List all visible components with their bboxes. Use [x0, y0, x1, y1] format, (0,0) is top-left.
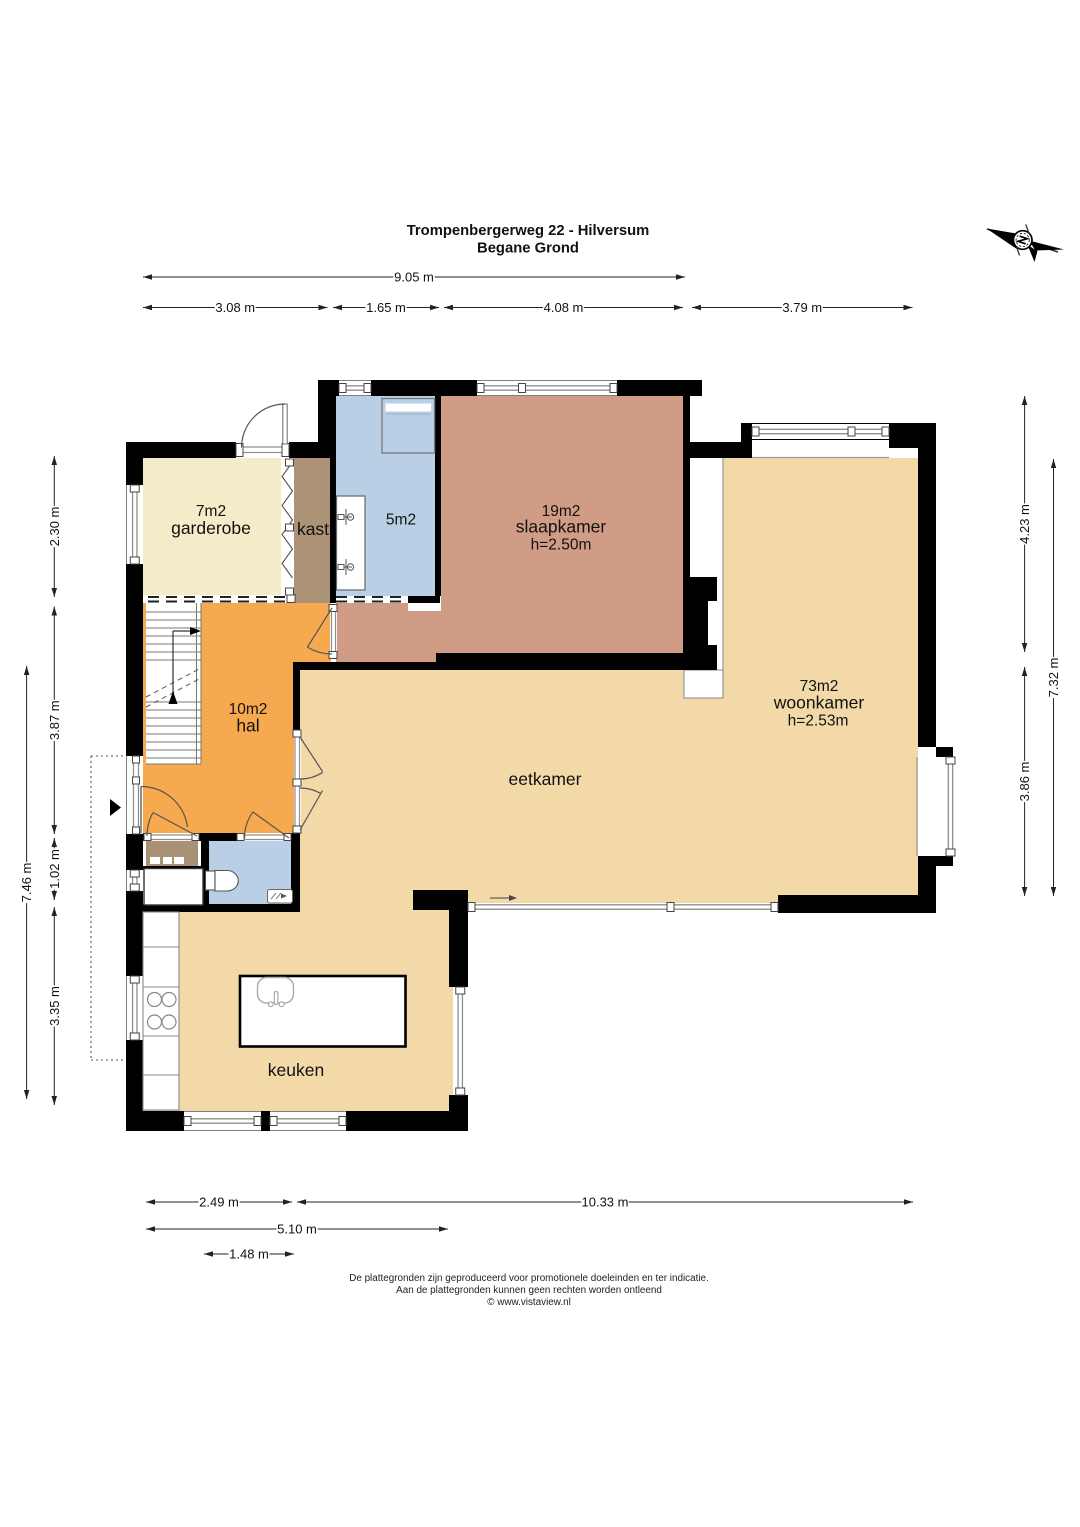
- svg-text:De plattegronden zijn geproduc: De plattegronden zijn geproduceerd voor …: [349, 1273, 709, 1284]
- svg-text:9.05 m: 9.05 m: [394, 270, 434, 285]
- svg-text:1.02 m: 1.02 m: [47, 849, 62, 889]
- svg-text:1.65 m: 1.65 m: [366, 300, 406, 315]
- svg-text:5m2: 5m2: [386, 512, 416, 529]
- svg-text:5.10 m: 5.10 m: [277, 1222, 317, 1237]
- svg-text:h=2.53m: h=2.53m: [788, 713, 849, 730]
- svg-text:Trompenbergerweg 22 - Hilversu: Trompenbergerweg 22 - Hilversum: [407, 223, 650, 239]
- svg-text:keuken: keuken: [268, 1060, 324, 1080]
- svg-text:3.79 m: 3.79 m: [782, 300, 822, 315]
- svg-text:3.08 m: 3.08 m: [215, 300, 255, 315]
- svg-text:1.48 m: 1.48 m: [229, 1247, 269, 1262]
- svg-text:7.32 m: 7.32 m: [1046, 658, 1061, 698]
- svg-text:10.33 m: 10.33 m: [582, 1195, 629, 1210]
- svg-text:4.08 m: 4.08 m: [544, 300, 584, 315]
- svg-text:2.49 m: 2.49 m: [199, 1195, 239, 1210]
- svg-text:3.35 m: 3.35 m: [47, 986, 62, 1026]
- svg-text:eetkamer: eetkamer: [509, 769, 582, 789]
- svg-text:© www.vistaview.nl: © www.vistaview.nl: [487, 1297, 571, 1308]
- svg-text:2.30 m: 2.30 m: [47, 507, 62, 547]
- svg-text:Aan de plattegronden kunnen ge: Aan de plattegronden kunnen geen rechten…: [396, 1285, 662, 1296]
- svg-text:3.86 m: 3.86 m: [1017, 762, 1032, 802]
- svg-text:kast: kast: [297, 519, 329, 539]
- svg-text:garderobe: garderobe: [171, 518, 251, 538]
- svg-text:woonkamer: woonkamer: [773, 693, 865, 713]
- svg-text:hal: hal: [236, 716, 259, 736]
- svg-text:Begane Grond: Begane Grond: [477, 241, 579, 257]
- svg-text:slaapkamer: slaapkamer: [516, 517, 607, 537]
- svg-text:3.87 m: 3.87 m: [47, 700, 62, 740]
- svg-text:7.46 m: 7.46 m: [19, 863, 34, 903]
- svg-text:h=2.50m: h=2.50m: [531, 537, 592, 554]
- svg-text:4.23 m: 4.23 m: [1017, 504, 1032, 544]
